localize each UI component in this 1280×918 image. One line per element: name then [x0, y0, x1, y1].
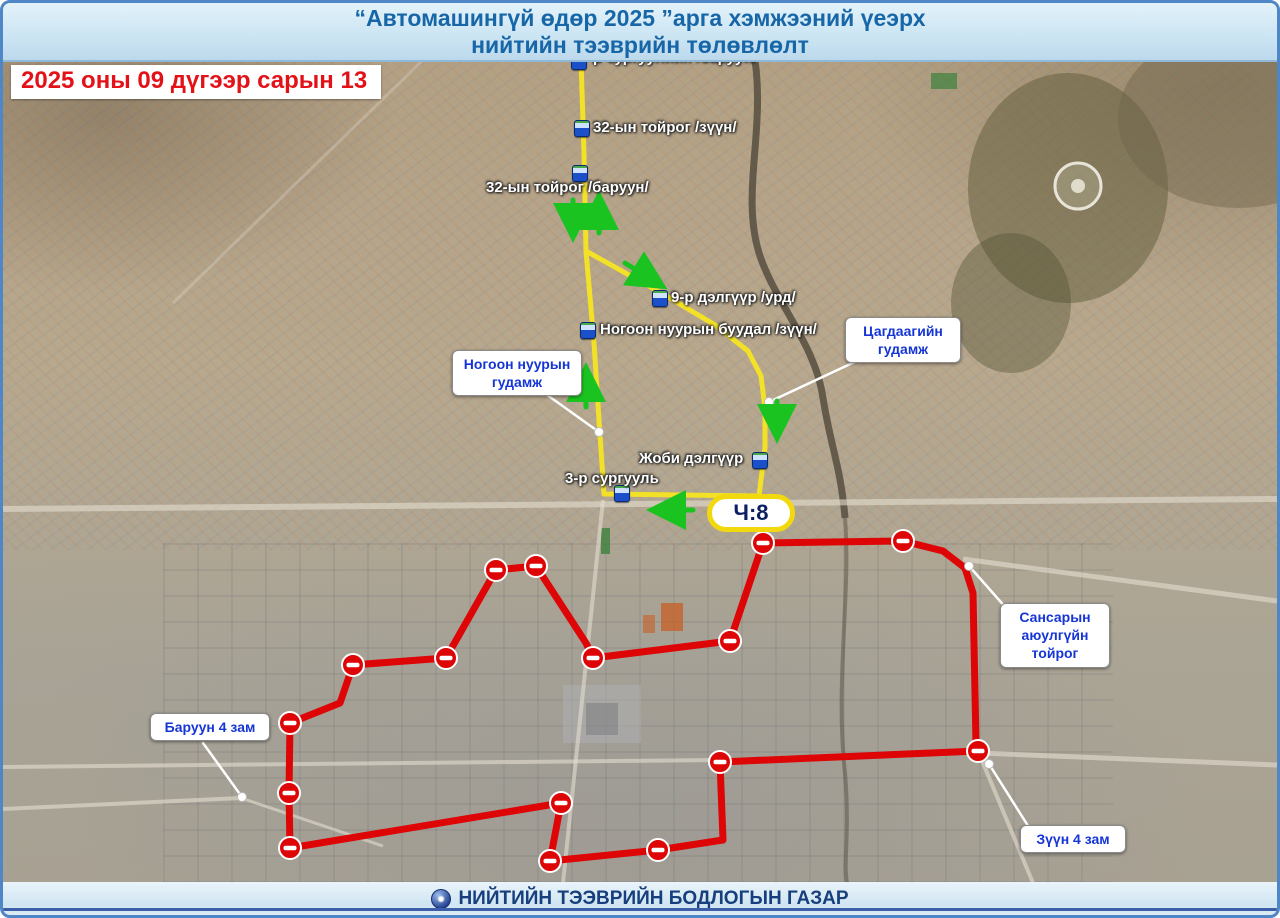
callout-text: тойрог — [1006, 644, 1104, 662]
bus-stop-icon — [652, 290, 668, 307]
stop-label-3r-surguuli: 3-р сургууль — [565, 470, 659, 487]
transport-authority-logo-icon — [431, 889, 451, 909]
callout-nogoon-nuuryn-gudamj: Ногоон нуурын гудамж — [452, 350, 582, 396]
callout-text: Цагдаагийн — [851, 322, 955, 340]
callout-text: Сансарын — [1006, 608, 1104, 626]
callout-text: Баруун 4 зам — [156, 718, 264, 736]
callout-text: аюулгүйн — [1006, 626, 1104, 644]
bus-stop-icon — [614, 485, 630, 502]
callout-text: гудамж — [851, 340, 955, 358]
stop-label-jobi-delguur: Жоби дэлгүүр — [639, 450, 743, 467]
bus-stop-icon — [574, 120, 590, 137]
callout-zuun-4-zam: Зүүн 4 зам — [1020, 825, 1126, 853]
callout-tsagdaagiin-gudamj: Цагдаагийн гудамж — [845, 317, 961, 363]
stop-label-nogoon-nuur: Ногоон нуурын буудал /зүүн/ — [600, 321, 817, 338]
poster-page: -р сургуулийн /баруун/ 32-ын тойрог /зүү… — [0, 0, 1280, 918]
satellite-map: -р сургуулийн /баруун/ 32-ын тойрог /зүү… — [3, 3, 1277, 915]
poster-footer: НИЙТИЙН ТЭЭВРИЙН БОДЛОГЫН ГАЗАР — [3, 882, 1277, 915]
callout-text: гудамж — [458, 373, 576, 391]
stop-label-32-toirog-west: 32-ын тойрог /баруун/ — [486, 179, 649, 196]
poster-header: “Автомашингүй өдөр 2025 ”арга хэмжээний … — [3, 3, 1277, 62]
callout-leader-lines — [203, 359, 1030, 829]
stop-label-9r-delguur: 9-р дэлгүүр /урд/ — [671, 289, 796, 306]
stop-label-32-toirog-east: 32-ын тойрог /зүүн/ — [593, 119, 737, 136]
event-date-badge: 2025 оны 09 дүгээр сарын 13 — [11, 65, 381, 99]
callout-text: Зүүн 4 зам — [1026, 830, 1120, 848]
page-title-line1: “Автомашингүй өдөр 2025 ”арга хэмжээний … — [354, 5, 925, 31]
page-title-line2: нийтийн тээврийн төлөвлөлт — [471, 32, 809, 58]
bus-stop-icon — [752, 452, 768, 469]
bus-stop-icon — [580, 322, 596, 339]
callout-sansaryn-toirog: Сансарын аюулгүйн тойрог — [1000, 603, 1110, 668]
callout-baruun-4-zam: Баруун 4 зам — [150, 713, 270, 741]
callout-text: Ногоон нуурын — [458, 355, 576, 373]
route-number-badge: Ч:8 — [707, 494, 795, 532]
organization-name: НИЙТИЙН ТЭЭВРИЙН БОДЛОГЫН ГАЗАР — [458, 888, 848, 910]
